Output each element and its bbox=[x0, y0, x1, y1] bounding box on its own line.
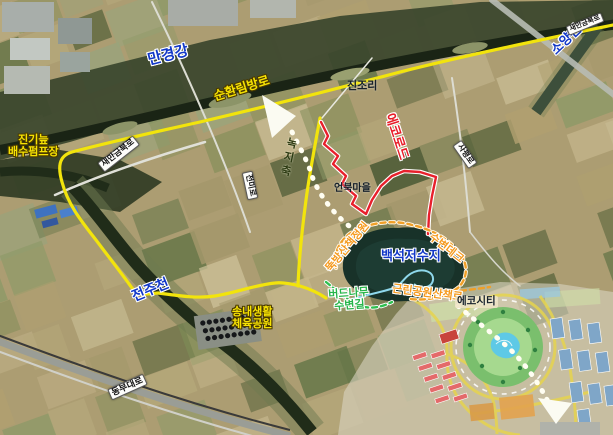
satellite-map: 만경강 소양천 새만금북로 새만금북로 순환림방로 진조리 진기늪 배수펌프장 … bbox=[0, 0, 613, 435]
orange-zone bbox=[499, 394, 535, 419]
satellite-base bbox=[0, 0, 613, 435]
